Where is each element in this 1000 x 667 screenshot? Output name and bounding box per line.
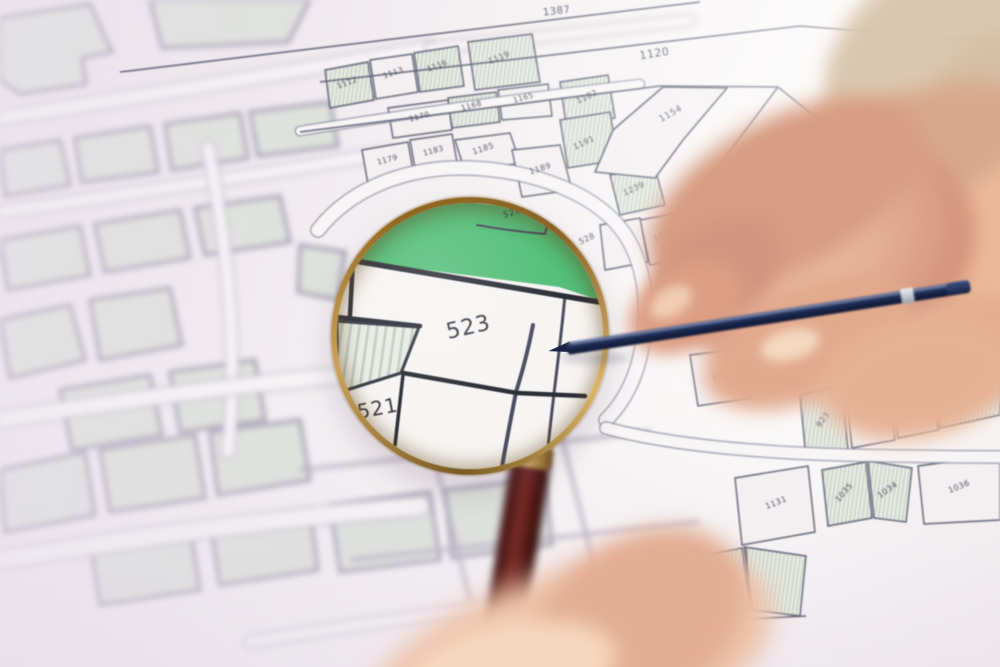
cadastral-map-photo: 1387112011541153111911121113111611701168…	[0, 0, 1000, 667]
left-hand	[0, 0, 1000, 667]
